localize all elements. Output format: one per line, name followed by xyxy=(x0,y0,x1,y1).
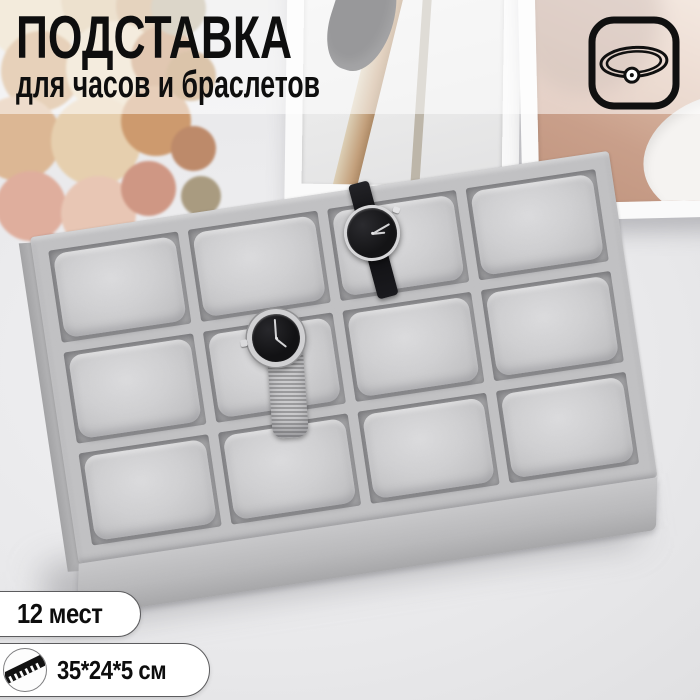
capacity-badge: 12 мест xyxy=(0,591,141,637)
watch-cushion xyxy=(192,215,326,317)
watch-slot xyxy=(466,169,609,280)
watch-slot xyxy=(357,393,500,504)
watch-cushion xyxy=(53,236,187,338)
product-photo: ПОДСТАВКА для часов и браслетов 12 мест xyxy=(0,0,700,700)
watch-silver-mesh xyxy=(242,304,309,371)
capacity-text: 12 мест xyxy=(17,598,103,630)
dimensions-badge: 35*24*5 см xyxy=(0,643,210,697)
watch-slot xyxy=(63,333,206,444)
hour-hand xyxy=(372,232,385,235)
watch-cushion xyxy=(361,397,495,499)
watch-slot xyxy=(187,211,330,322)
bracelet-icon xyxy=(588,16,680,110)
watch-slot xyxy=(79,435,222,546)
center-pin xyxy=(274,336,277,339)
watch-cushion xyxy=(486,275,620,377)
product-title: ПОДСТАВКА xyxy=(16,6,292,69)
watch-slot xyxy=(496,372,639,483)
watch-cushion xyxy=(68,338,202,440)
watch-cushion xyxy=(346,296,480,398)
product-subtitle: для часов и браслетов xyxy=(16,66,320,106)
ruler-icon xyxy=(3,648,47,692)
watch-slot xyxy=(481,271,624,382)
watch-cushion xyxy=(501,377,635,479)
watch-slot xyxy=(342,291,485,402)
watch-crown xyxy=(240,339,248,347)
watch-cushion xyxy=(470,174,604,276)
dimensions-text: 35*24*5 см xyxy=(57,655,166,686)
watch-slot xyxy=(48,231,191,342)
hour-hand xyxy=(276,338,287,348)
watch-cushion xyxy=(83,439,217,541)
